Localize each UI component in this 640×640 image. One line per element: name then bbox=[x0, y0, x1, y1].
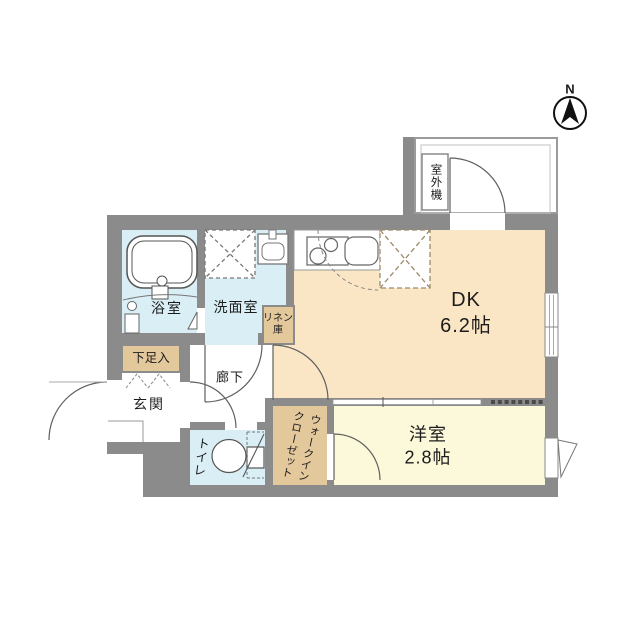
western-room-label: 洋室 2.8帖 bbox=[404, 424, 451, 471]
floor-plan-drawing bbox=[0, 0, 640, 640]
porch-door-opening bbox=[450, 213, 505, 230]
linen-storage-label: リネン 庫 bbox=[263, 313, 293, 337]
north-compass-icon bbox=[554, 97, 586, 129]
linen-line2: 庫 bbox=[263, 325, 293, 337]
compass-north-label: N bbox=[565, 82, 574, 99]
entry-door-arc bbox=[49, 382, 107, 440]
stove-icon bbox=[307, 237, 348, 265]
bath-faucet-icon bbox=[125, 302, 139, 334]
entrance-label: 玄関 bbox=[133, 395, 165, 413]
kitchen-counter bbox=[294, 230, 380, 270]
linen-line1: リネン bbox=[263, 313, 293, 325]
washbasin-icon bbox=[258, 230, 288, 264]
shoe-storage-label: 下足入 bbox=[132, 350, 170, 366]
dk-window bbox=[545, 293, 558, 357]
refrigerator-space bbox=[380, 230, 430, 288]
floor-plan: DK 6.2帖 洋室 2.8帖 浴室 洗面室 玄関 廊下 下足入 リネン 庫 室… bbox=[0, 0, 640, 640]
dk-area: 6.2帖 bbox=[440, 313, 492, 339]
dk-name: DK bbox=[440, 287, 492, 313]
outdoor-unit-label: 室外機 bbox=[428, 163, 443, 201]
western-room-window bbox=[545, 438, 577, 478]
dk-room-label: DK 6.2帖 bbox=[440, 287, 492, 339]
kitchen-sink-icon bbox=[345, 237, 378, 265]
hallway-label: 廊下 bbox=[216, 370, 244, 387]
washroom-label: 洗面室 bbox=[214, 298, 259, 316]
western-room-name: 洋室 bbox=[404, 424, 451, 447]
dk-floor-south bbox=[273, 345, 545, 400]
bath-door-opening bbox=[197, 308, 205, 333]
western-room-area: 2.8帖 bbox=[404, 447, 451, 470]
washing-machine-pan-icon bbox=[205, 230, 255, 278]
bathroom-label: 浴室 bbox=[151, 299, 183, 317]
